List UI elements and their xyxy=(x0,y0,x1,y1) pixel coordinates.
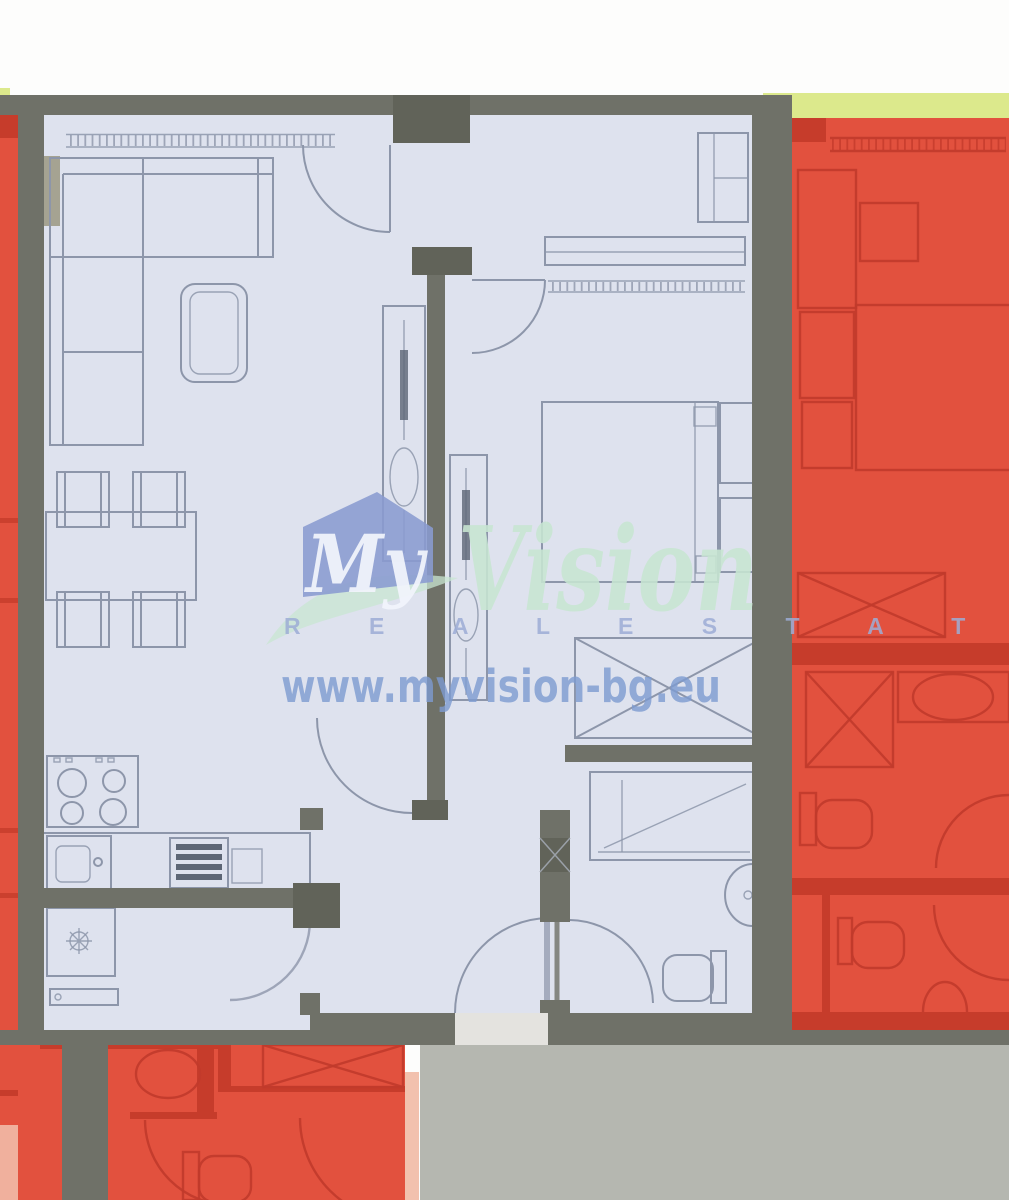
terrace-strip xyxy=(0,1125,18,1200)
interior-wall xyxy=(792,1012,1009,1030)
floor-plan-image: My Vision R E A L E S T A T E www.myvisi… xyxy=(0,0,1009,1200)
wall-stub xyxy=(540,1000,570,1013)
left-strip-wall-line xyxy=(0,828,18,833)
wall-bottom xyxy=(792,1030,1009,1045)
adjacent-unit-right xyxy=(792,118,1009,1032)
wall-block xyxy=(293,883,340,928)
wall-top xyxy=(18,95,765,115)
interior-wall xyxy=(0,1090,18,1096)
wall-right xyxy=(752,95,792,1045)
left-strip-wall xyxy=(0,112,18,138)
wall-vertical xyxy=(62,1045,108,1200)
left-strip-wall-line xyxy=(0,893,18,898)
adjacent-unit-left-strip xyxy=(0,112,18,1035)
left-strip-wall-line xyxy=(0,598,18,603)
wall-bottom xyxy=(0,1030,420,1045)
brand-word-my: My xyxy=(303,517,428,611)
wall-bathroom-top xyxy=(565,745,792,762)
floor-plan: My Vision R E A L E S T A T E www.myvisi… xyxy=(0,0,1009,1200)
wall-stub xyxy=(300,808,323,830)
tv-cabinet xyxy=(44,156,60,226)
entry-gap xyxy=(455,1013,548,1045)
wall-stub xyxy=(412,247,472,275)
duct-shaft xyxy=(540,838,570,872)
wall-kitchen xyxy=(44,888,300,908)
ground-area xyxy=(420,1032,1009,1200)
interior-wall xyxy=(130,1112,217,1119)
website-url: www.myvision-bg.eu xyxy=(281,660,721,713)
brand-tagline: R E A L E S T A T E xyxy=(284,613,1009,639)
right-unit-wall-stub xyxy=(792,118,826,142)
interior-wall xyxy=(218,1045,231,1091)
wall-left xyxy=(18,95,44,1035)
interior-wall-thin xyxy=(822,895,830,1015)
left-strip-wall-line xyxy=(0,518,18,523)
interior-wall xyxy=(792,643,1009,665)
wall-stub xyxy=(300,993,320,1015)
interior-wall xyxy=(792,878,1009,895)
wall-block xyxy=(393,95,470,143)
terrace-strip xyxy=(405,1072,419,1200)
wall-stub xyxy=(412,800,448,820)
balcony-strip xyxy=(763,93,1009,119)
window xyxy=(66,135,335,148)
wall-bottom xyxy=(548,1013,752,1045)
